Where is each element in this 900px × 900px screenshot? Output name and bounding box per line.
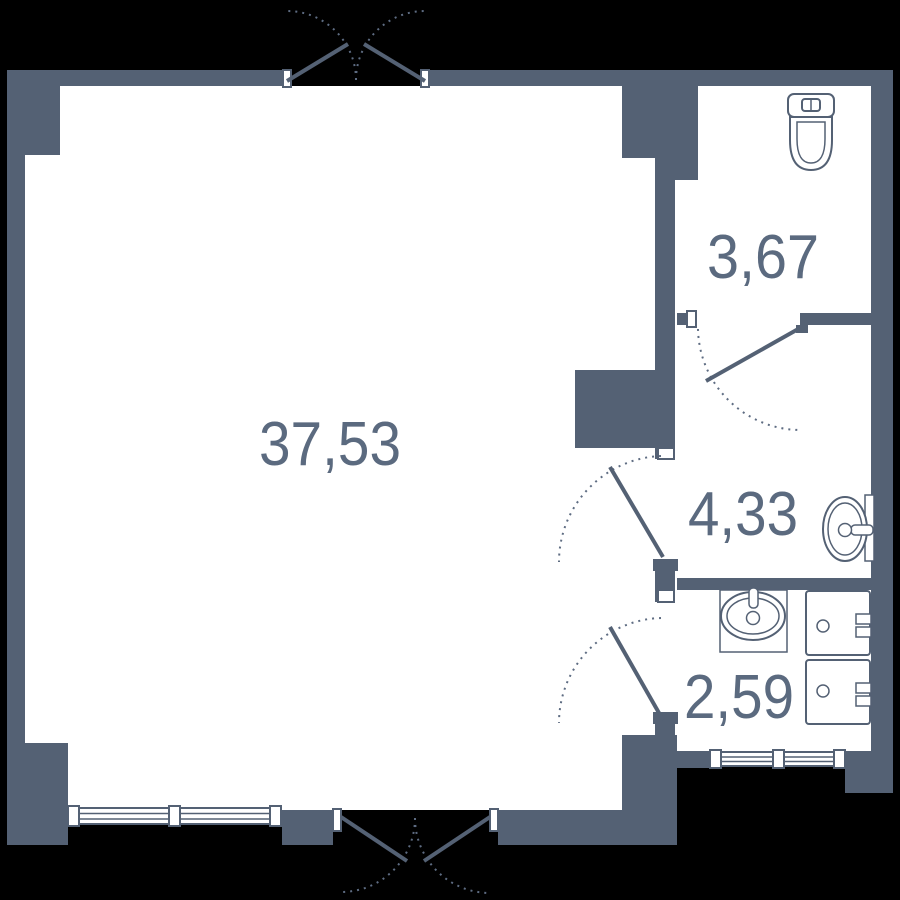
washer-hookup [856, 696, 871, 706]
wall-left [7, 155, 25, 743]
door-leaf [341, 817, 407, 861]
wall-bath-bottom [677, 751, 711, 768]
doorway-bottom-right [650, 602, 680, 712]
washing-machine-icon [806, 660, 871, 724]
wall-wc-right-span [800, 313, 872, 325]
jamb-mid-door [658, 448, 674, 459]
room-main-area-label: 37,53 [259, 410, 401, 479]
toilet-icon [788, 94, 834, 170]
window-mullion [169, 806, 180, 826]
washer-knob [817, 620, 829, 632]
wall-right [871, 70, 893, 751]
washing-machine-icon [806, 591, 871, 655]
room-mid-right-area-label: 4,33 [688, 480, 798, 549]
window-mullion [68, 806, 79, 826]
wall-corner-bottom-mid [622, 735, 677, 845]
jamb-wc-door [687, 311, 696, 327]
wall-sink-icon [823, 495, 874, 561]
door-swing-arc [415, 818, 490, 893]
wall-midright-partition [677, 578, 872, 590]
wall-pier-step [655, 158, 698, 180]
window-mullion [710, 750, 721, 768]
wall-stub-b [655, 571, 675, 590]
double-door-bottom [341, 817, 490, 893]
doorway-top-right [695, 311, 800, 327]
door-leaf [364, 44, 425, 81]
door-leaf [287, 44, 348, 81]
washer-hookup [856, 627, 871, 637]
window-bottom-right [710, 750, 845, 768]
door-leaf [424, 817, 490, 861]
window-bottom-left [68, 806, 281, 826]
wall-corner-top-left [7, 70, 60, 155]
room-top-right-area-label: 3,67 [707, 223, 819, 292]
vanity-sink-icon [720, 588, 787, 652]
wall-bottom-a [282, 810, 333, 845]
sink-faucet [749, 588, 758, 608]
washer-knob [817, 685, 829, 697]
door-hinge-nub-bottom [653, 712, 678, 724]
floor-plan: 37,53 3,67 4,33 2,59 [0, 0, 900, 900]
wall-stub-d [655, 724, 675, 735]
window-mullion [834, 750, 845, 768]
double-door-top [287, 11, 425, 81]
sink-drain [839, 524, 852, 537]
washer-hookup [856, 614, 871, 624]
door-swing-arc [341, 818, 415, 892]
washer-hookup [856, 683, 871, 693]
sink-faucet [851, 525, 873, 535]
wall-top-right-span [429, 70, 893, 86]
wall-pier-middle [575, 370, 675, 448]
toilet-bowl-inner [797, 122, 825, 163]
jamb-bottom-door-left [333, 809, 341, 831]
door-hinge-nub-mid [653, 559, 678, 571]
jamb-bottom-right-door [658, 590, 674, 602]
window-mullion [773, 750, 784, 768]
floor-plan-canvas: 37,53 3,67 4,33 2,59 [0, 0, 900, 900]
wall-corner-bottom-right [845, 751, 893, 793]
jamb-bottom-door-right [490, 809, 498, 831]
window-mullion [270, 806, 281, 826]
wall-corner-bottom-left [7, 743, 68, 845]
room-bottom-right-area-label: 2,59 [684, 663, 794, 732]
wall-divider-upper [655, 180, 675, 370]
wall-pier-top [622, 86, 698, 158]
sink-drain [747, 612, 760, 625]
